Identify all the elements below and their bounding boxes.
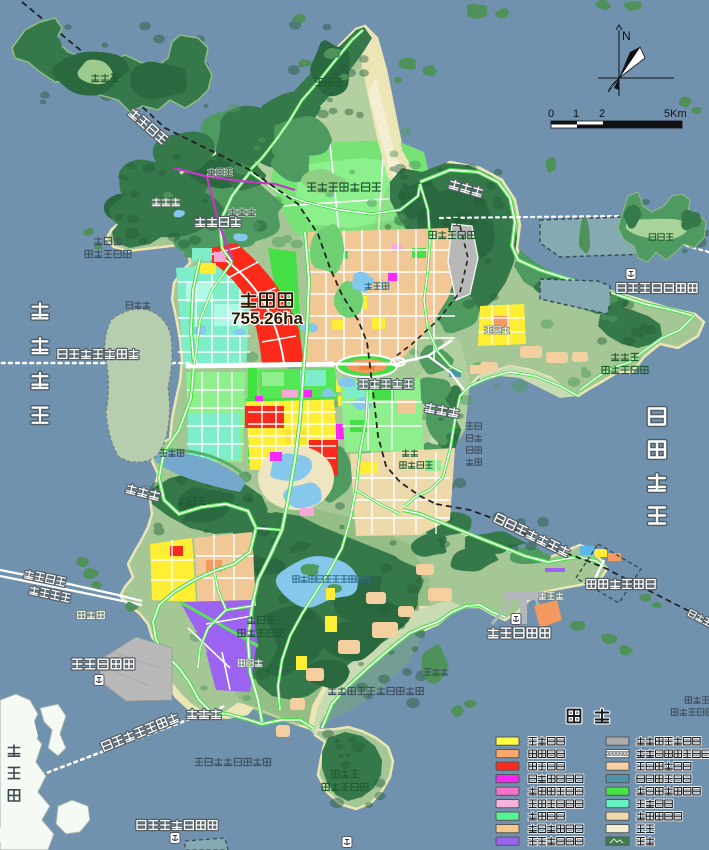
svg-text:5Km: 5Km [664, 108, 687, 120]
svg-text:755.26ha: 755.26ha [231, 309, 303, 328]
svg-text:2: 2 [599, 108, 605, 120]
svg-text:N: N [622, 29, 631, 43]
svg-text:1: 1 [573, 108, 579, 120]
svg-text:0: 0 [548, 108, 554, 120]
